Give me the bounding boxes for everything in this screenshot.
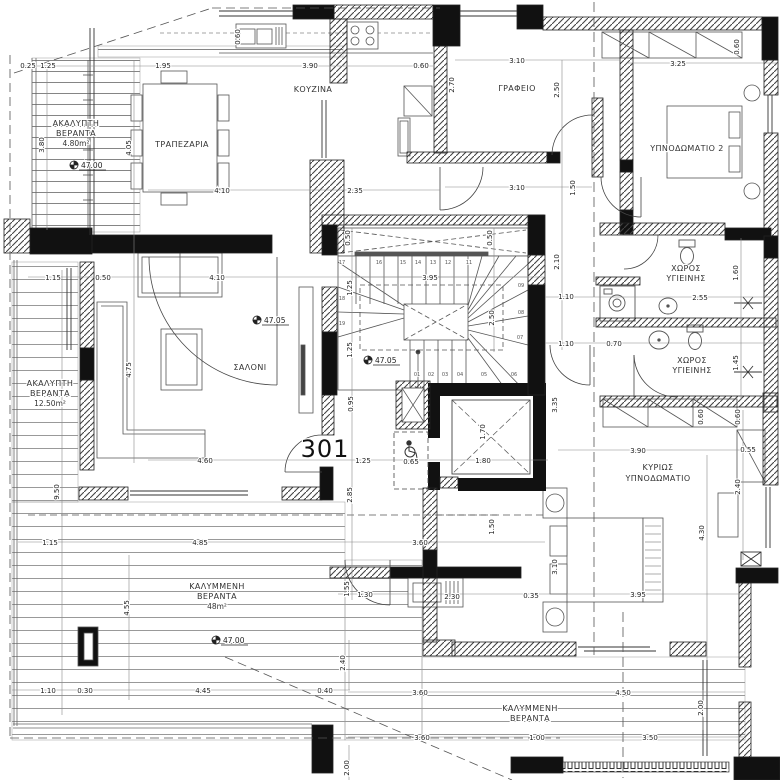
room-label-office: ΓΡΑΦΕΙΟ [498, 84, 536, 93]
elevator [394, 381, 546, 491]
dim-label: 1.10 [40, 687, 56, 695]
dining-chair [161, 193, 187, 205]
stair-step-number: 03 [442, 372, 448, 378]
room-label-master: ΚΥΡΙΩΣ [643, 463, 674, 472]
stair-step-number: 11 [466, 260, 472, 266]
dim-label: 1.50 [569, 180, 577, 196]
dim-label: 2.10 [553, 254, 561, 270]
dim-label: 2.00 [697, 700, 705, 716]
master-bed-bench [643, 518, 663, 602]
dim-label: 0.70 [606, 340, 622, 348]
dim-label: 1.15 [42, 539, 58, 547]
dim-label: 0.30 [77, 687, 93, 695]
covered-veranda-deck-c [422, 657, 745, 740]
stair-step-number: 07 [517, 335, 523, 341]
dining-chair [218, 95, 229, 121]
dim-label: 2.50 [553, 82, 561, 98]
floor-plan-page: ΚΟΥΖΙΝΑ ΤΡΑΠΕΖΑΡΙΑ ΓΡΑΦΕΙΟ ΥΠΝΟΔΩΜΑΤΙΟ 2… [0, 0, 780, 780]
dim-label: 3.10 [509, 184, 525, 192]
dim-label: 2.35 [347, 187, 363, 195]
dim-label: 0.60 [234, 29, 242, 45]
dim-label: 4.55 [123, 600, 131, 616]
room-label-bath2: ΥΓΙΕΙΝΗΣ [671, 366, 711, 375]
stair-step-number: 16 [376, 260, 382, 266]
master-bed [567, 518, 643, 602]
dim-label: 4.30 [698, 525, 706, 541]
stove [347, 22, 378, 49]
dim-label: 2.00 [343, 760, 351, 776]
stair-step-number: 06 [511, 372, 517, 378]
room-label-open-veranda2: ΑΚΑΛΥΠΤΗ [27, 379, 74, 388]
room-label-covered-veranda: ΒΕΡΑΝΤΑ [197, 592, 237, 601]
room-label-open-veranda2: ΒΕΡΑΝΤΑ [30, 389, 70, 398]
dim-label: 2.85 [346, 487, 354, 503]
dim-label: 0.35 [523, 592, 539, 600]
dim-label: 3.10 [509, 57, 525, 65]
stair-step-number: 02 [428, 372, 434, 378]
room-label-covered-veranda: ΚΑΛΥΜΜΕΝΗ [189, 582, 245, 591]
dim-label: 3.80 [38, 137, 46, 153]
bedroom2-nightstand [744, 85, 760, 101]
stair-step-number: 12 [445, 260, 451, 266]
dim-label: 3.60 [412, 689, 428, 697]
dim-label: 3.50 [642, 734, 658, 742]
stair-step-number: 01 [414, 372, 420, 378]
dim-label: 1.70 [479, 424, 487, 440]
dim-label: 4.50 [615, 689, 631, 697]
stair-step-number: 14 [415, 260, 421, 266]
dim-label: 1.15 [45, 274, 61, 282]
stair-step-number: 18 [339, 296, 345, 302]
dim-label: 2.55 [692, 294, 708, 302]
room-label-open-veranda1: ΑΚΑΛΥΠΤΗ [53, 119, 100, 128]
stair-step-number: 15 [400, 260, 406, 266]
room-label-open-veranda1: ΒΕΡΑΝΤΑ [56, 129, 96, 138]
dim-label: 1.25 [355, 457, 371, 465]
dining-chair [218, 163, 229, 189]
dim-label: 4.60 [197, 457, 213, 465]
dim-label: 2.40 [339, 655, 347, 671]
dim-label: 3.90 [630, 447, 646, 455]
dim-label: 4.85 [192, 539, 208, 547]
bath-fixtures [600, 240, 703, 350]
dim-label: 0.55 [740, 446, 756, 454]
dim-label: 2.30 [444, 593, 460, 601]
staircase [338, 228, 528, 392]
stair-step-number: 09 [518, 283, 524, 289]
stair-step-number: 04 [457, 372, 463, 378]
room-label-bath1: ΧΩΡΟΣ [671, 264, 701, 273]
dim-label: 3.95 [630, 591, 646, 599]
dim-label: 1.30 [357, 591, 373, 599]
dining-chair [131, 163, 142, 189]
dim-label: 0.60 [697, 409, 705, 425]
dim-label: 1.50 [488, 519, 496, 535]
dim-label: 0.60 [413, 62, 429, 70]
dim-label: 9.50 [53, 484, 61, 500]
window-burst [734, 297, 762, 309]
room-label-dining: ΤΡΑΠΕΖΑΡΙΑ [154, 140, 209, 149]
floor-plan-drawing: ΚΟΥΖΙΝΑ ΤΡΑΠΕΖΑΡΙΑ ΓΡΑΦΕΙΟ ΥΠΝΟΔΩΜΑΤΙΟ 2… [0, 0, 780, 780]
dim-label: 3.25 [670, 60, 686, 68]
dim-label: 2.50 [488, 310, 496, 326]
dim-label: 0.50 [344, 230, 352, 246]
elevation-label: 47.05 [264, 316, 286, 325]
dim-label: 3.60 [412, 539, 428, 547]
dim-label: 1.10 [558, 293, 574, 301]
master-desk [718, 493, 738, 537]
dim-label: 2.70 [448, 77, 456, 93]
dim-label: 0.60 [734, 409, 742, 425]
stair-step-number: 05 [481, 372, 487, 378]
dim-label: 4.10 [209, 274, 225, 282]
dim-label: 4.10 [214, 187, 230, 195]
area-label-covered-veranda: 48m² [207, 602, 227, 611]
room-label-bath1: ΥΓΙΕΙΝΗΣ [665, 274, 705, 283]
dining-chair [131, 95, 142, 121]
area-label-open-veranda2: 12.50m² [34, 399, 66, 408]
dim-label: 1.95 [155, 62, 171, 70]
dim-label: 1.25 [40, 62, 56, 70]
dim-label: 1.60 [732, 265, 740, 281]
bedroom2-nightstand [744, 183, 760, 199]
dining-chair [161, 71, 187, 83]
tv-screen [301, 345, 305, 395]
area-label-open-veranda1: 4.80m² [62, 139, 89, 148]
dim-label: 4.05 [125, 140, 133, 156]
dim-label: 3.90 [302, 62, 318, 70]
coffee-table [161, 329, 202, 390]
room-label-living: ΣΑΛΟΝΙ [233, 363, 266, 372]
room-label-master: ΥΠΝΟΔΩΜΑΤΙΟ [624, 474, 690, 483]
dim-label: 1.45 [732, 355, 740, 371]
stair-step-number: 08 [518, 310, 524, 316]
dim-label: 1.25 [346, 280, 354, 296]
dim-label: 2.40 [734, 479, 742, 495]
room-label-bedroom2: ΥΠΝΟΔΩΜΑΤΙΟ 2 [649, 144, 724, 153]
dim-label: 1.00 [529, 734, 545, 742]
dim-label: 1.10 [558, 340, 574, 348]
dim-label: 0.50 [95, 274, 111, 282]
room-label-covered-veranda2: ΚΑΛΥΜΜΕΝΗ [502, 704, 558, 713]
stair-step-number: 13 [430, 260, 436, 266]
wheelchair-icon [405, 441, 417, 458]
dim-label: 3.10 [551, 559, 559, 575]
dining-chair [218, 130, 229, 156]
dim-label: 1.55 [343, 581, 351, 597]
dim-label: 1.80 [475, 457, 491, 465]
dim-label: 3.95 [422, 274, 438, 282]
dim-label: 0.50 [486, 230, 494, 246]
dim-label: 1.25 [346, 342, 354, 358]
elevation-label: 47.05 [375, 356, 397, 365]
dim-label: 0.40 [317, 687, 333, 695]
room-label-covered-veranda2: ΒΕΡΑΝΤΑ [510, 714, 550, 723]
elevation-label: 47.00 [223, 636, 245, 645]
elevation-label: 47.00 [81, 161, 103, 170]
railing [563, 762, 729, 772]
dim-label: 4.45 [195, 687, 211, 695]
dining-table [143, 84, 217, 192]
dim-label: 3.35 [551, 397, 559, 413]
stair-step-number: 19 [339, 321, 345, 327]
room-label-kitchen: ΚΟΥΖΙΝΑ [294, 85, 333, 94]
dim-label: 0.95 [347, 396, 355, 412]
unit-number-label: 301 [301, 435, 350, 463]
dim-label: 0.25 [20, 62, 36, 70]
dim-label: 0.65 [403, 458, 419, 466]
room-label-bath2: ΧΩΡΟΣ [677, 356, 707, 365]
top-ledge-deck [98, 46, 343, 57]
toilet [679, 240, 695, 247]
dim-label: 4.75 [125, 362, 133, 378]
stair-step-number: 17 [339, 260, 345, 266]
dim-label: 3.60 [414, 734, 430, 742]
dim-label: 0.60 [733, 39, 741, 55]
